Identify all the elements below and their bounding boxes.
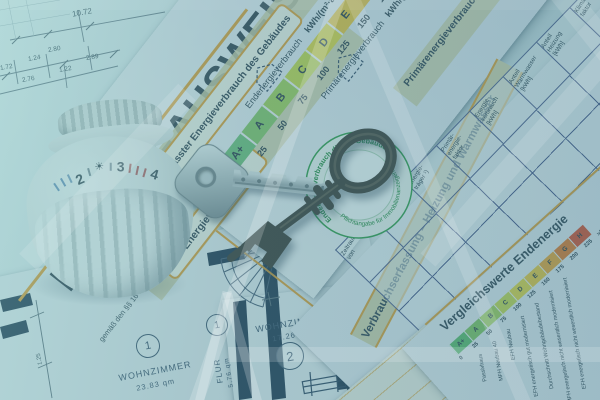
photo-energy-certificate-scene: 10.72 2.80 2.89 1.24 1.72 1.22 2.76 (0, 0, 600, 400)
skeleton-key (0, 0, 600, 400)
